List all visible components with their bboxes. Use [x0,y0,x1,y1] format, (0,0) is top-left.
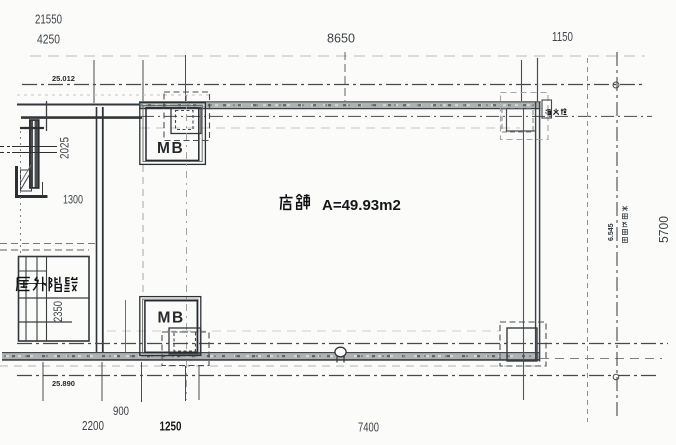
svg-text:2200: 2200 [82,418,104,433]
svg-text:2350: 2350 [51,301,65,322]
svg-text:1250: 1250 [160,419,182,434]
svg-text:MB: MB [157,140,184,157]
svg-text:7400: 7400 [358,420,379,435]
svg-text:1300: 1300 [63,193,83,207]
svg-text:5700: 5700 [657,216,671,243]
svg-text:4250: 4250 [37,32,60,47]
svg-text:A=49.93m2: A=49.93m2 [322,197,401,214]
svg-text:MB: MB [158,310,185,327]
svg-text:1150: 1150 [552,29,573,44]
svg-text:25.890: 25.890 [52,379,75,388]
svg-text:21550: 21550 [35,12,62,27]
svg-text:8650: 8650 [327,31,355,46]
svg-text:2025: 2025 [58,137,72,159]
svg-text:900: 900 [113,404,129,418]
svg-text:25.012: 25.012 [52,74,75,83]
svg-text:6.545: 6.545 [608,223,615,241]
